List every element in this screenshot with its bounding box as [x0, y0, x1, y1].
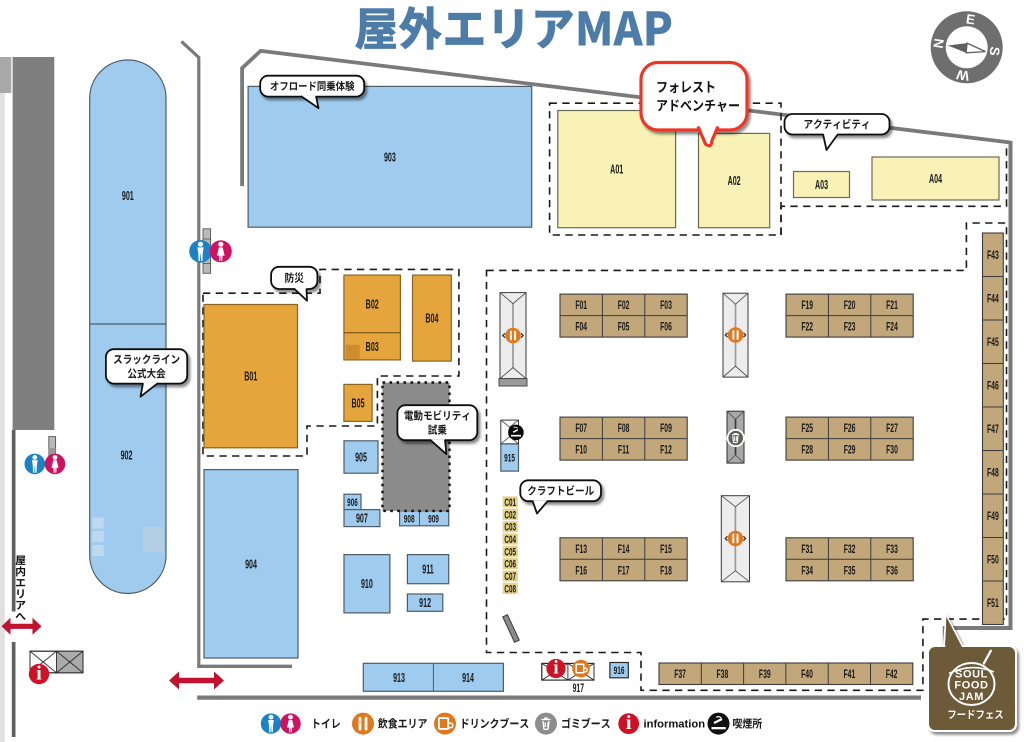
svg-text:F13: F13 [575, 543, 587, 557]
svg-text:F45: F45 [987, 336, 999, 350]
svg-text:F16: F16 [575, 564, 587, 578]
svg-text:901: 901 [122, 190, 134, 204]
svg-text:F15: F15 [660, 543, 672, 557]
svg-text:904: 904 [245, 558, 257, 572]
svg-text:F40: F40 [801, 668, 813, 682]
svg-text:916: 916 [614, 664, 625, 676]
svg-text:F26: F26 [844, 422, 856, 436]
svg-text:F49: F49 [987, 510, 999, 524]
svg-text:F18: F18 [660, 564, 672, 578]
svg-text:JAM: JAM [959, 691, 984, 703]
svg-text:F36: F36 [886, 564, 898, 578]
svg-text:F41: F41 [844, 668, 856, 682]
svg-text:F04: F04 [575, 321, 587, 335]
svg-text:C06: C06 [504, 558, 516, 570]
svg-text:907: 907 [356, 513, 368, 527]
svg-text:C01: C01 [504, 496, 516, 508]
svg-text:C02: C02 [504, 508, 516, 520]
svg-text:F03: F03 [660, 299, 672, 313]
svg-text:F27: F27 [886, 422, 898, 436]
svg-text:F33: F33 [886, 543, 898, 557]
svg-text:F46: F46 [987, 380, 999, 394]
svg-text:F17: F17 [618, 564, 630, 578]
svg-text:917: 917 [573, 682, 584, 696]
svg-text:N: N [931, 38, 947, 50]
svg-text:F07: F07 [575, 422, 587, 436]
svg-text:F50: F50 [987, 554, 999, 568]
svg-text:F19: F19 [801, 299, 813, 313]
svg-text:F30: F30 [886, 444, 898, 458]
svg-text:F20: F20 [844, 299, 856, 313]
svg-text:F42: F42 [886, 668, 898, 682]
svg-text:B05: B05 [351, 398, 364, 412]
svg-text:A04: A04 [929, 173, 942, 187]
svg-text:F14: F14 [618, 543, 630, 557]
svg-text:F09: F09 [660, 422, 672, 436]
svg-text:B03: B03 [366, 341, 379, 355]
svg-text:914: 914 [462, 672, 474, 686]
svg-text:FOOD: FOOD [954, 680, 988, 692]
svg-text:B01: B01 [244, 371, 257, 385]
svg-text:F34: F34 [801, 564, 813, 578]
svg-text:F12: F12 [660, 444, 672, 458]
svg-text:903: 903 [384, 151, 396, 165]
svg-text:F11: F11 [618, 444, 630, 458]
svg-text:F02: F02 [618, 299, 630, 313]
svg-text:C08: C08 [504, 583, 516, 595]
svg-text:F29: F29 [844, 444, 856, 458]
svg-text:F25: F25 [801, 422, 813, 436]
svg-text:911: 911 [422, 564, 434, 578]
svg-text:905: 905 [355, 452, 367, 466]
svg-text:C07: C07 [504, 570, 516, 582]
svg-text:F01: F01 [575, 299, 587, 313]
svg-text:F39: F39 [759, 668, 771, 682]
svg-text:F23: F23 [844, 321, 856, 335]
svg-text:915: 915 [504, 452, 515, 464]
svg-text:B04: B04 [425, 313, 438, 327]
svg-text:A02: A02 [728, 175, 741, 189]
svg-text:910: 910 [361, 578, 373, 592]
svg-text:F48: F48 [987, 467, 999, 481]
svg-text:B02: B02 [366, 299, 379, 313]
svg-text:F10: F10 [575, 444, 587, 458]
svg-text:F47: F47 [987, 423, 999, 437]
svg-text:902: 902 [121, 449, 133, 463]
svg-text:F22: F22 [801, 321, 813, 335]
svg-text:F43: F43 [987, 249, 999, 263]
svg-text:909: 909 [428, 513, 439, 525]
svg-text:A03: A03 [815, 179, 828, 193]
svg-text:information: information [644, 719, 706, 731]
svg-text:F06: F06 [660, 321, 672, 335]
svg-text:F44: F44 [987, 293, 999, 307]
svg-text:F37: F37 [674, 668, 686, 682]
svg-text:913: 913 [393, 672, 405, 686]
svg-text:F24: F24 [886, 321, 898, 335]
svg-text:W: W [955, 67, 970, 84]
svg-text:F08: F08 [618, 422, 630, 436]
svg-text:F31: F31 [801, 543, 813, 557]
svg-text:F28: F28 [801, 444, 813, 458]
svg-text:C04: C04 [504, 533, 516, 545]
svg-text:C05: C05 [504, 546, 516, 558]
svg-text:F05: F05 [618, 321, 630, 335]
svg-text:908: 908 [404, 513, 415, 525]
svg-text:F21: F21 [886, 299, 898, 313]
svg-text:912: 912 [419, 597, 431, 611]
svg-text:i: i [36, 662, 42, 684]
svg-text:A01: A01 [610, 164, 623, 178]
svg-text:F32: F32 [844, 543, 856, 557]
svg-text:C03: C03 [504, 521, 516, 533]
svg-text:F35: F35 [844, 564, 856, 578]
svg-text:906: 906 [347, 496, 358, 508]
svg-text:i: i [626, 712, 632, 734]
svg-text:SOUL: SOUL [955, 669, 988, 681]
svg-text:i: i [553, 658, 558, 679]
svg-text:F51: F51 [987, 597, 999, 611]
svg-text:F38: F38 [717, 668, 729, 682]
